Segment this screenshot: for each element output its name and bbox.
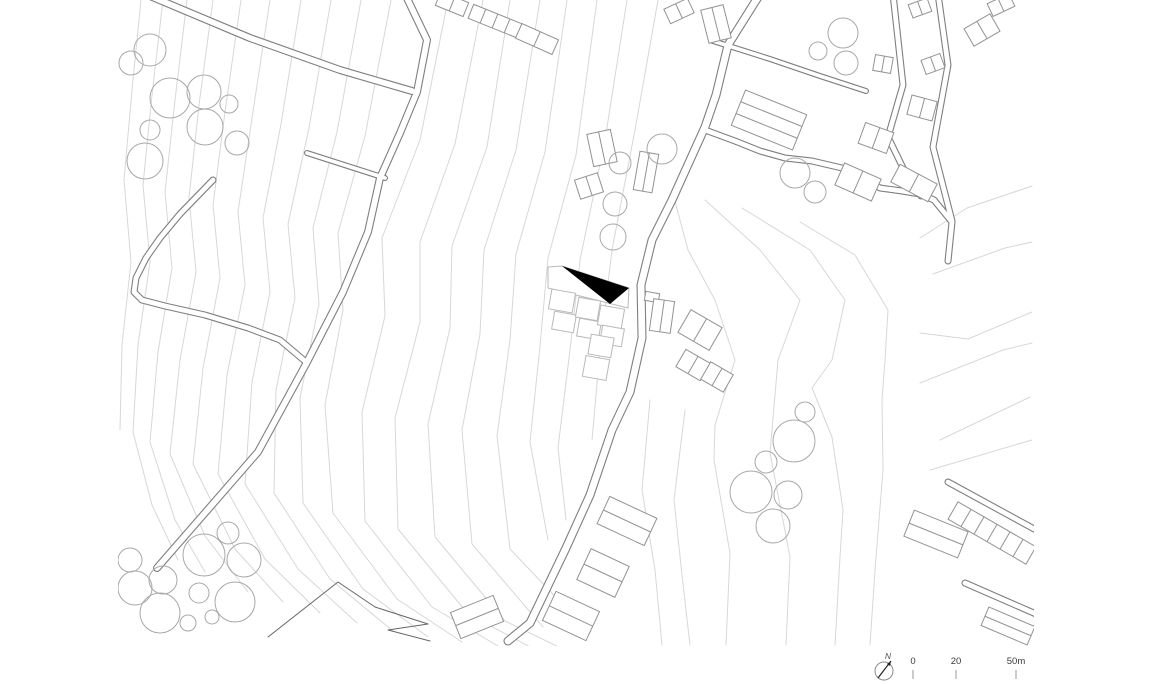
- road-surface: [705, 130, 952, 261]
- contour-line: [930, 440, 1032, 470]
- building: [515, 24, 558, 55]
- footpath: [268, 582, 428, 637]
- scale-label-zero: 0: [910, 656, 915, 667]
- tree-canopy: [834, 51, 858, 75]
- building: [574, 173, 603, 199]
- building: [649, 299, 674, 334]
- road-casing: [134, 180, 306, 362]
- contour-line: [920, 312, 1032, 339]
- tree-canopy: [134, 34, 166, 66]
- contour-line: [920, 186, 1032, 238]
- contour-line: [362, 0, 498, 646]
- road-surface: [965, 583, 1036, 614]
- garden-plot: [548, 289, 575, 313]
- building: [435, 0, 468, 17]
- building: [835, 163, 881, 201]
- tree-canopy: [118, 548, 142, 572]
- building: [964, 14, 1000, 46]
- road-surface: [307, 153, 385, 178]
- tree-canopy: [804, 181, 826, 203]
- contour-line: [428, 0, 565, 650]
- contour-line: [672, 190, 735, 645]
- tree-canopy: [227, 543, 261, 577]
- site-plan-page: N 0 20 50m: [0, 0, 1160, 684]
- tree-canopy: [603, 192, 627, 216]
- tree-canopy: [795, 402, 815, 422]
- scale-label-twenty: 20: [951, 656, 962, 667]
- contour-line: [462, 0, 543, 627]
- contour-lines-layer: [120, 0, 1032, 650]
- tree-canopy: [187, 75, 221, 109]
- building: [908, 0, 932, 18]
- north-label: N: [885, 651, 891, 661]
- tree-canopy: [217, 522, 239, 544]
- contour-line: [940, 397, 1030, 440]
- building: [987, 0, 1015, 16]
- contour-line: [920, 343, 1032, 383]
- tree-canopy: [150, 78, 190, 118]
- tree-canopy: [220, 95, 238, 113]
- contour-line: [742, 208, 845, 645]
- road-surface: [134, 180, 306, 362]
- contour-line: [150, 0, 205, 572]
- scale-bar: [913, 670, 1016, 679]
- contour-line: [674, 410, 690, 645]
- tree-canopy: [809, 42, 827, 60]
- tree-canopy: [118, 571, 152, 605]
- garden-plot: [575, 297, 600, 321]
- buildings-layer: [435, 0, 1036, 645]
- building: [907, 95, 937, 121]
- building: [678, 310, 722, 351]
- road-surface: [713, 41, 866, 91]
- tree-canopy: [149, 566, 177, 594]
- building: [873, 55, 894, 74]
- tree-canopy: [647, 134, 677, 164]
- building: [921, 54, 945, 75]
- tree-canopy: [755, 451, 777, 473]
- tree-canopy: [189, 583, 209, 603]
- tree-canopy: [828, 18, 858, 48]
- tree-canopy: [773, 420, 815, 462]
- garden-plot: [588, 334, 614, 358]
- building: [633, 151, 658, 193]
- tree-canopy: [756, 509, 790, 543]
- scale-label-fifty-m: 50m: [1007, 656, 1025, 667]
- tree-canopy: [730, 471, 772, 513]
- garden-plot: [597, 305, 624, 329]
- contour-line: [558, 0, 627, 520]
- footpath-layer: [268, 582, 430, 641]
- site-plan-map: [0, 0, 1160, 684]
- tree-canopy: [225, 131, 249, 155]
- north-arrow-icon: [875, 661, 893, 680]
- tree-canopy: [180, 615, 196, 631]
- building: [597, 496, 657, 545]
- tree-canopy: [215, 582, 255, 622]
- building: [542, 591, 599, 640]
- building: [701, 5, 732, 44]
- tree-canopy: [205, 610, 219, 624]
- tree-canopy: [187, 109, 223, 145]
- garden-plot: [582, 356, 609, 381]
- contour-line: [245, 0, 357, 623]
- tree-canopy: [119, 51, 143, 75]
- tree-canopy: [140, 593, 180, 633]
- building: [577, 549, 629, 598]
- contour-line: [705, 200, 800, 645]
- building: [664, 0, 694, 24]
- contour-line: [218, 0, 320, 613]
- footpath: [388, 624, 430, 641]
- garden-plot: [552, 311, 577, 333]
- contour-line: [325, 0, 462, 642]
- building: [587, 129, 617, 166]
- contour-line: [120, 0, 141, 430]
- tree-canopy: [140, 120, 160, 140]
